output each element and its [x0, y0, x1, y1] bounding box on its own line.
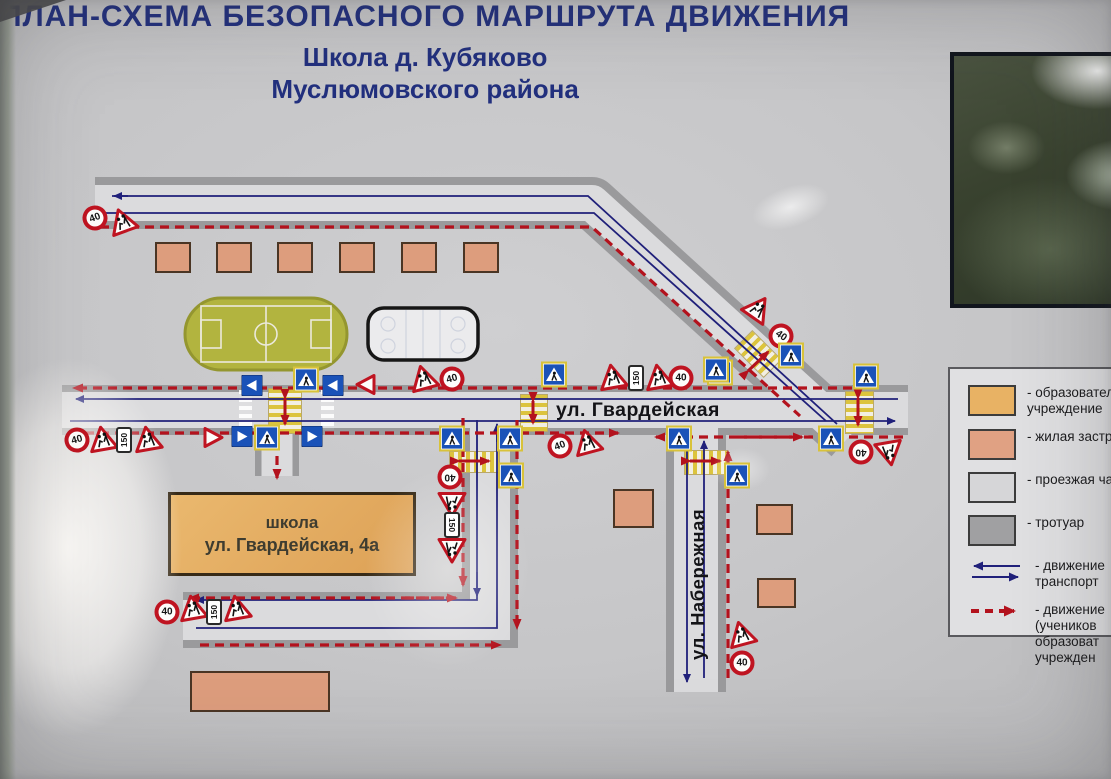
street-label-gvardeyskaya: ул. Гвардейская: [556, 399, 752, 425]
sign-direction: [242, 370, 263, 396]
legend-swatch: [968, 515, 1016, 546]
legend-label: - движение транспорт: [1035, 558, 1105, 590]
sign-direction: [323, 370, 344, 396]
legend-swatch: [968, 429, 1016, 460]
sign-pedestrian-crossing: [439, 426, 465, 457]
sign-children-warning: [596, 361, 630, 397]
sign-pedestrian-crossing: [818, 426, 844, 457]
sign-pedestrian-crossing: [724, 463, 750, 494]
street-label-naberezhnaya: ул. Набережная: [687, 498, 713, 670]
legend-item: - проезжая ча: [968, 472, 1111, 503]
sign-pedestrian-crossing: [254, 425, 280, 456]
sign-speed-40: 40: [849, 440, 874, 465]
sign-speed-40: 40: [669, 366, 694, 391]
route-arrow-icon: [968, 604, 1024, 618]
sign-pedestrian-crossing: [703, 357, 729, 388]
legend-label: - образовател учреждение: [1027, 385, 1111, 417]
title-line3: Муслюмовского района: [0, 75, 850, 104]
sign-distance-150: 150: [206, 599, 222, 625]
sign-pedestrian-crossing: [778, 343, 804, 374]
sign-children-warning: [220, 592, 254, 628]
sign-pedestrian-crossing: [293, 367, 319, 398]
legend-item: - образовател учреждение: [968, 385, 1111, 417]
transport-arrows-icon: [968, 560, 1024, 584]
sign-pedestrian-crossing: [497, 426, 523, 457]
legend-label: - тротуар: [1027, 515, 1084, 531]
sign-direction: [232, 426, 253, 452]
legend-item: - жилая застр: [968, 429, 1111, 460]
legend-swatch: [968, 472, 1016, 503]
sign-speed-40: 40: [155, 600, 180, 625]
sign-pedestrian-crossing: [498, 463, 524, 494]
legend-swatch: [968, 385, 1016, 416]
sign-children-warning: [438, 533, 467, 564]
legend-label: - движение (учеников образоват учрежден: [1035, 602, 1105, 666]
sign-direction: [302, 426, 323, 452]
legend: - образовател учреждение- жилая застр- п…: [948, 367, 1111, 637]
satellite-image: [950, 52, 1111, 308]
legend-item: - движение транспорт: [968, 558, 1111, 590]
sign-distance-150: 150: [116, 427, 132, 453]
sign-pedestrian-crossing: [541, 362, 567, 393]
sign-children-warning: [872, 433, 906, 469]
sign-children-warning: [86, 423, 120, 459]
sign-give-way: [354, 368, 378, 397]
route-map-poster: школа ул. Гвардейская, 4а: [0, 0, 1111, 779]
legend-item: - движение (учеников образоват учрежден: [968, 602, 1111, 666]
sign-give-way: [201, 426, 225, 455]
poster-title: ПЛАН-СХЕМА БЕЗОПАСНОГО МАРШРУТА ДВИЖЕНИЯ…: [0, 0, 850, 104]
legend-item: - тротуар: [968, 515, 1111, 546]
legend-label: - проезжая ча: [1027, 472, 1111, 488]
sign-speed-40: 40: [730, 651, 755, 676]
sign-pedestrian-crossing: [853, 364, 879, 395]
title-line2: Школа д. Кубяково: [0, 43, 850, 72]
poster-edge: [0, 0, 16, 779]
sign-children-warning: [176, 592, 210, 628]
sign-pedestrian-crossing: [666, 426, 692, 457]
legend-label: - жилая застр: [1027, 429, 1111, 445]
title-line1: ПЛАН-СХЕМА БЕЗОПАСНОГО МАРШРУТА ДВИЖЕНИЯ: [0, 0, 850, 34]
sign-children-warning: [131, 423, 165, 459]
